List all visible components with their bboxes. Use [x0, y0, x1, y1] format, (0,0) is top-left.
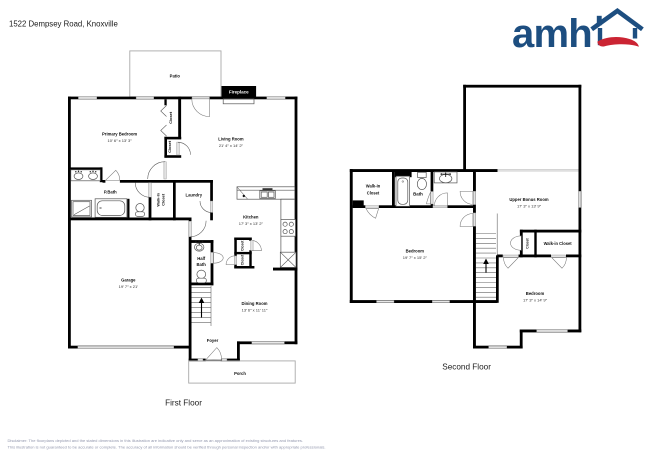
svg-text:19′ 7″ x 21′: 19′ 7″ x 21′: [119, 284, 139, 289]
svg-text:Porch: Porch: [234, 371, 246, 376]
svg-text:10′ 6″ x 13′ 3″: 10′ 6″ x 13′ 3″: [108, 138, 133, 143]
svg-text:P.Bath: P.Bath: [104, 189, 117, 194]
svg-text:Laundry: Laundry: [186, 193, 203, 198]
svg-text:17′ 3″ x 13′ 2″: 17′ 3″ x 13′ 2″: [239, 221, 264, 226]
svg-text:Garage: Garage: [121, 277, 136, 282]
svg-text:Disclaimer: The floorplans dep: Disclaimer: The floorplans depicted and …: [8, 438, 304, 443]
svg-text:Primary Bedroom: Primary Bedroom: [102, 132, 137, 137]
svg-text:Fireplace: Fireplace: [229, 89, 249, 94]
svg-text:Closet: Closet: [526, 237, 530, 248]
svg-text:Second Floor: Second Floor: [442, 363, 491, 372]
svg-text:Closet: Closet: [367, 190, 380, 195]
svg-text:17′ 3″ x 13′ 9″: 17′ 3″ x 13′ 9″: [517, 204, 542, 209]
svg-text:First Floor: First Floor: [165, 398, 202, 407]
svg-text:21′ 4″ x 14′ 2″: 21′ 4″ x 14′ 2″: [219, 143, 244, 148]
svg-text:Bedroom: Bedroom: [406, 248, 425, 253]
svg-text:Walk-In: Walk-In: [366, 184, 381, 189]
svg-text:Closet: Closet: [167, 140, 172, 153]
svg-text:1522 Dempsey Road, Knoxville: 1522 Dempsey Road, Knoxville: [9, 20, 118, 29]
svg-text:Walk-in Closet: Walk-in Closet: [544, 241, 573, 246]
svg-text:Closet: Closet: [241, 240, 245, 251]
svg-text:17′ 3″ x 14′ 9″: 17′ 3″ x 14′ 9″: [523, 298, 548, 303]
svg-text:Dining Room: Dining Room: [241, 301, 267, 306]
svg-text:Patio: Patio: [170, 73, 181, 78]
svg-text:13′ 6″ x 11′ 11″: 13′ 6″ x 11′ 11″: [242, 308, 268, 313]
svg-text:Bedroom: Bedroom: [526, 291, 545, 296]
svg-text:Upper Bonus Room: Upper Bonus Room: [509, 197, 549, 202]
svg-text:amh: amh: [512, 12, 592, 56]
svg-text:Bath: Bath: [197, 262, 207, 267]
svg-text:This illustration is not guara: This illustration is not guaranteed to b…: [8, 445, 326, 450]
svg-text:Half: Half: [197, 256, 206, 261]
svg-text:Living Room: Living Room: [218, 137, 244, 142]
svg-text:19′ 7″ x 15′ 2″: 19′ 7″ x 15′ 2″: [403, 255, 428, 260]
svg-text:Bath: Bath: [413, 191, 423, 196]
svg-text:Closet: Closet: [241, 254, 245, 265]
svg-text:Kitchen: Kitchen: [243, 215, 259, 220]
svg-text:Foyer: Foyer: [207, 338, 219, 343]
svg-text:Closet: Closet: [168, 111, 173, 124]
svg-text:Closet: Closet: [161, 193, 166, 206]
